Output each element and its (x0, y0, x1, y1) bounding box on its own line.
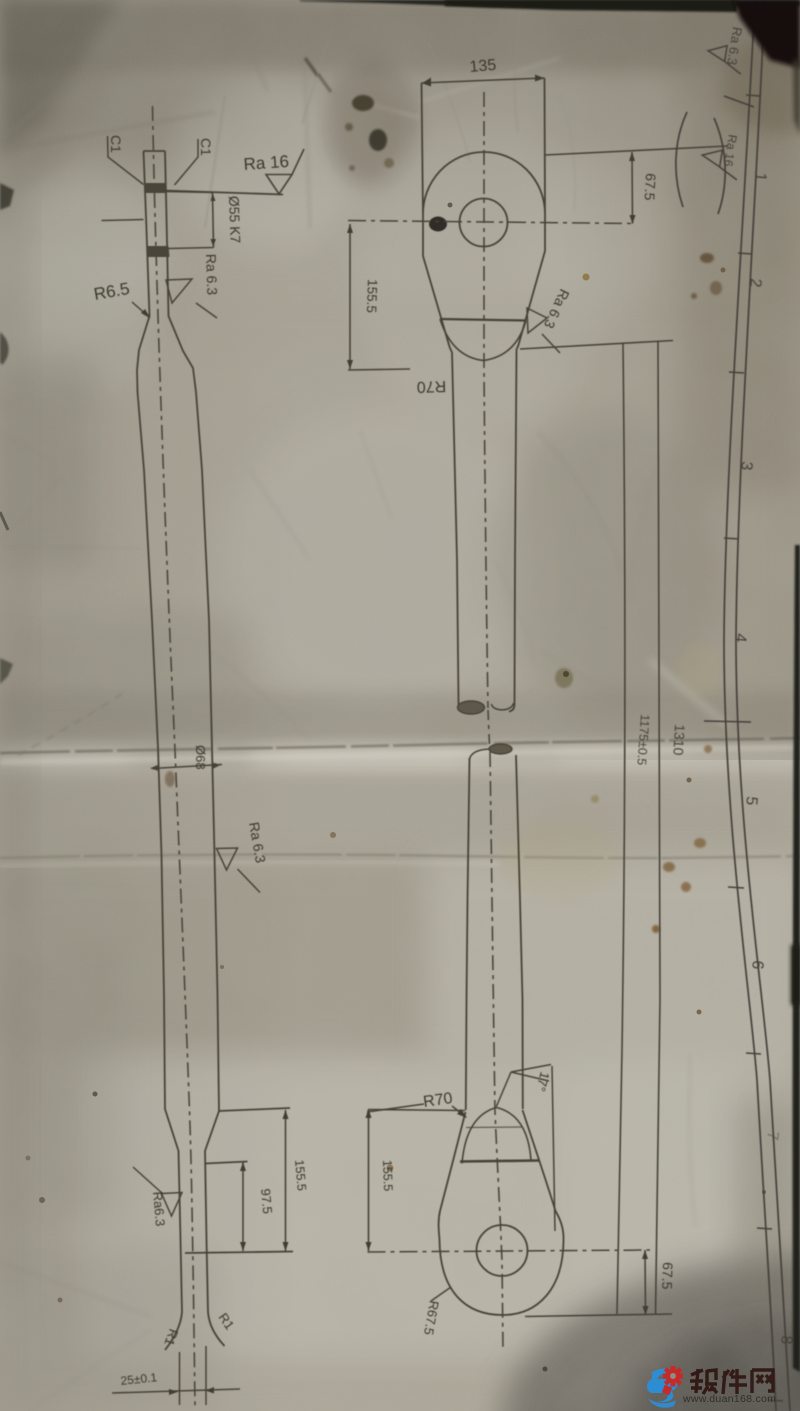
svg-text:155.5: 155.5 (380, 1160, 395, 1192)
svg-text:97.5: 97.5 (258, 1188, 275, 1215)
svg-text:C1: C1 (108, 135, 124, 153)
svg-text:6: 6 (748, 960, 766, 970)
svg-text:8: 8 (777, 1335, 795, 1345)
svg-text:R70: R70 (416, 377, 446, 395)
svg-text:Ra 16: Ra 16 (243, 152, 290, 174)
svg-text:Ø68: Ø68 (193, 745, 208, 770)
svg-text:Ra6.3: Ra6.3 (150, 1191, 168, 1227)
svg-text:4: 4 (731, 633, 749, 643)
svg-text:1: 1 (751, 172, 769, 182)
svg-text:67.5: 67.5 (659, 1262, 676, 1290)
svg-text:155.5: 155.5 (292, 1159, 309, 1191)
svg-text:5: 5 (742, 796, 760, 806)
svg-text:Ra 6.3: Ra 6.3 (203, 254, 220, 296)
svg-text:www.duan168.com: www.duan168.com (682, 1393, 776, 1405)
svg-text:1310: 1310 (670, 724, 688, 756)
svg-text:7: 7 (763, 1131, 781, 1141)
svg-text:C1: C1 (198, 138, 214, 156)
svg-text:3: 3 (737, 461, 755, 471)
svg-text:67.5: 67.5 (642, 173, 659, 201)
svg-text:135: 135 (469, 57, 497, 76)
svg-text:Ø55 K7: Ø55 K7 (226, 196, 244, 244)
svg-text:155.5: 155.5 (364, 279, 380, 313)
svg-text:2: 2 (746, 278, 764, 288)
